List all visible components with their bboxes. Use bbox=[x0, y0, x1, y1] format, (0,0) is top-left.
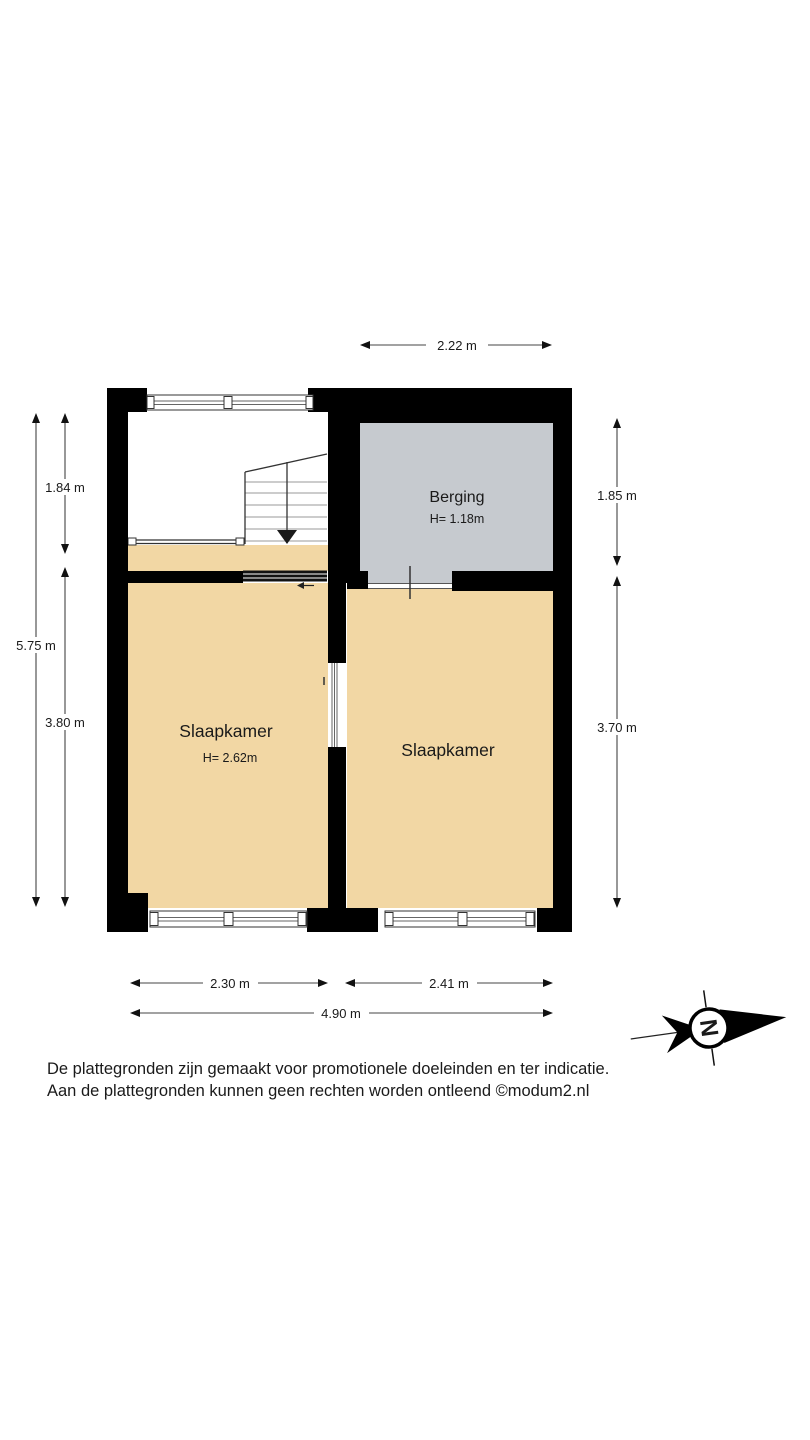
dimension-right-upper: 1.85 m bbox=[590, 418, 644, 566]
dimension-right-lower: 3.70 m bbox=[590, 576, 644, 908]
wall-middle-upper bbox=[328, 583, 346, 663]
dimension-bottom-left: 2.30 m bbox=[130, 975, 328, 991]
wall-hall-left bbox=[128, 571, 243, 583]
wall-bottom-left-corner bbox=[107, 893, 148, 932]
slaapkamer-left-floor bbox=[128, 583, 328, 908]
wall-berging-bottom-stub bbox=[347, 571, 368, 589]
window-bottom-left bbox=[150, 911, 307, 927]
disclaimer: De plattegronden zijn gemaakt voor promo… bbox=[47, 1060, 609, 1100]
dim-label-left-upper: 1.84 m bbox=[45, 480, 85, 495]
dimension-top-berging-width: 2.22 m bbox=[360, 337, 552, 353]
wall-right-outer bbox=[553, 388, 572, 932]
dim-label-top: 2.22 m bbox=[437, 338, 477, 353]
window-top bbox=[147, 395, 313, 410]
window-bottom-right bbox=[385, 911, 535, 927]
wall-top-berging bbox=[328, 388, 572, 423]
wall-left-outer bbox=[107, 388, 128, 932]
wall-bottom-middle bbox=[307, 908, 378, 932]
wall-bottom-right-corner bbox=[537, 908, 572, 932]
dim-label-left-total: 5.75 m bbox=[16, 638, 56, 653]
floorplan-page: 2.22 m 5.75 m 1.84 m 3.80 m bbox=[0, 0, 810, 1440]
dim-label-right-upper: 1.85 m bbox=[597, 488, 637, 503]
north-arrow-icon: N bbox=[625, 980, 791, 1077]
disclaimer-line1: De plattegronden zijn gemaakt voor promo… bbox=[47, 1060, 609, 1078]
berging-label: Berging bbox=[429, 489, 484, 506]
dim-label-left-lower: 3.80 m bbox=[45, 715, 85, 730]
landing-floor bbox=[128, 545, 328, 571]
staircase bbox=[128, 454, 327, 545]
wall-berging-bottom-right bbox=[452, 571, 553, 591]
dim-label-bottom-right: 2.41 m bbox=[429, 976, 469, 991]
slaapkamer-left-height-label: H= 2.62m bbox=[203, 751, 258, 765]
slaapkamer-right-label: Slaapkamer bbox=[401, 740, 495, 760]
stair-direction-arrow bbox=[277, 462, 297, 544]
dim-label-bottom-total: 4.90 m bbox=[321, 1006, 361, 1021]
slaapkamer-left-label: Slaapkamer bbox=[179, 721, 273, 741]
wall-stairwell-berging bbox=[328, 412, 360, 583]
wall-top-left-corner bbox=[107, 388, 147, 412]
dim-label-right-lower: 3.70 m bbox=[597, 720, 637, 735]
berging-height-label: H= 1.18m bbox=[430, 512, 485, 526]
stair-diagonal-edge bbox=[245, 454, 327, 472]
dimension-left-upper: 1.84 m bbox=[38, 413, 92, 554]
dimension-left-lower: 3.80 m bbox=[38, 567, 92, 907]
compass-north-wing bbox=[720, 1000, 789, 1043]
dimension-bottom-total: 4.90 m bbox=[130, 1005, 553, 1021]
stair-railing bbox=[128, 538, 244, 545]
dim-label-bottom-left: 2.30 m bbox=[210, 976, 250, 991]
dimension-bottom-right: 2.41 m bbox=[345, 975, 553, 991]
wall-middle-lower bbox=[328, 747, 346, 908]
floorplan-drawing: 2.22 m 5.75 m 1.84 m 3.80 m bbox=[0, 0, 810, 1440]
disclaimer-line2: Aan de plattegronden kunnen geen rechten… bbox=[47, 1082, 589, 1100]
